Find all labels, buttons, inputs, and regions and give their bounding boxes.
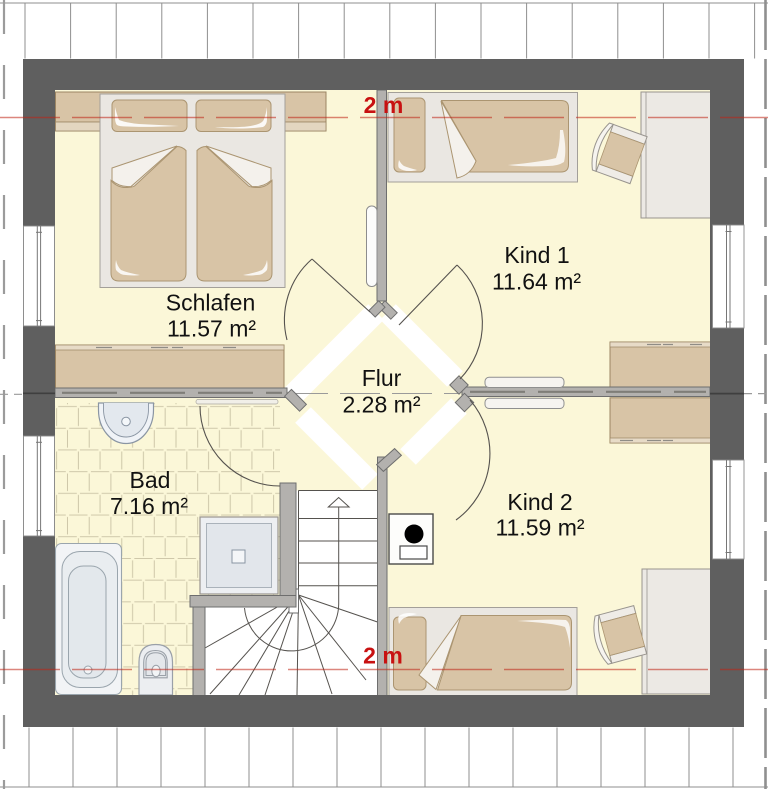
svg-text:2 m: 2 m <box>364 92 404 118</box>
svg-text:2.28 m²: 2.28 m² <box>343 392 421 418</box>
svg-text:11.59 m²: 11.59 m² <box>495 515 584 541</box>
svg-text:Flur: Flur <box>362 365 402 391</box>
svg-text:Kind 2: Kind 2 <box>507 489 572 515</box>
svg-text:11.64 m²: 11.64 m² <box>492 269 581 295</box>
svg-text:7.16 m²: 7.16 m² <box>110 493 188 519</box>
svg-text:11.57 m²: 11.57 m² <box>167 316 256 342</box>
svg-text:Bad: Bad <box>130 467 171 493</box>
svg-text:2 m: 2 m <box>363 643 403 669</box>
svg-text:Schlafen: Schlafen <box>166 290 256 316</box>
svg-text:Kind 1: Kind 1 <box>504 242 569 268</box>
